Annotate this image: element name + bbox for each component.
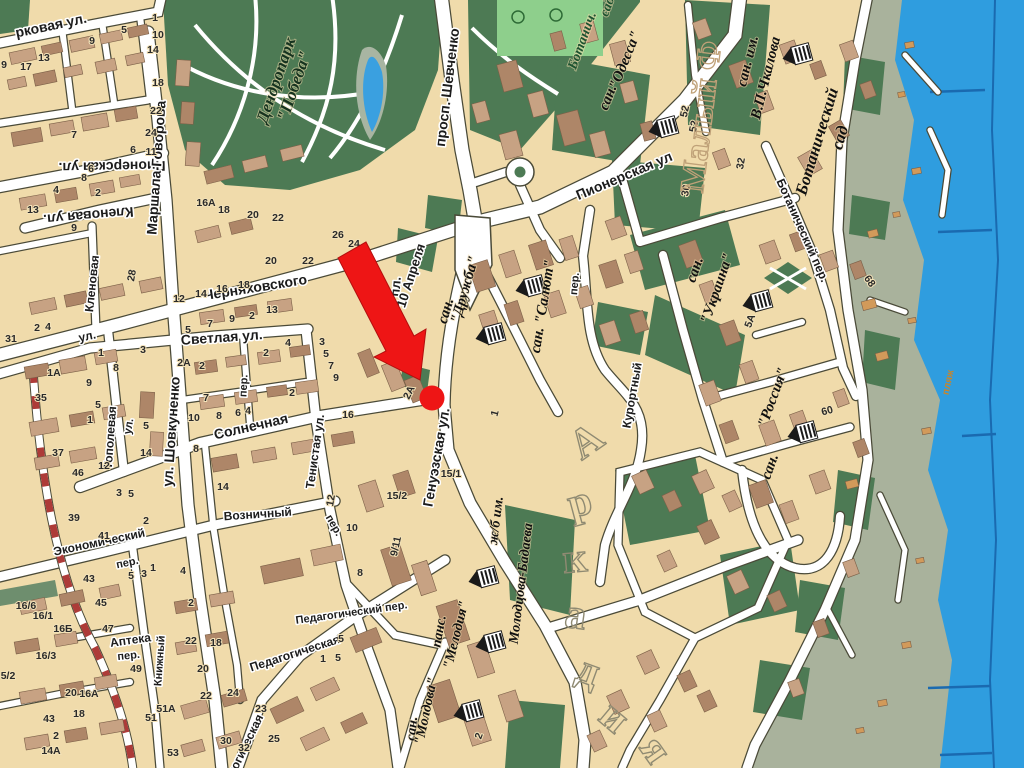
house-number: 3 xyxy=(141,568,147,580)
building xyxy=(908,317,917,323)
house-number: 1А xyxy=(47,367,61,379)
house-number: 22 xyxy=(200,690,212,702)
building xyxy=(916,557,925,563)
street-label: пер. xyxy=(237,374,250,397)
house-number: 5 xyxy=(143,420,149,432)
house-number: 15/2 xyxy=(387,490,408,502)
house-number: 3 xyxy=(140,344,146,356)
house-number: 16/1 xyxy=(33,610,54,622)
house-number: 39 xyxy=(68,512,80,524)
house-number: 49 xyxy=(130,663,142,675)
house-number: 16 xyxy=(342,409,354,421)
house-number: 4 xyxy=(53,184,59,196)
house-number: 5 xyxy=(338,633,344,645)
house-number: 12 xyxy=(98,460,110,472)
house-number: 14 xyxy=(140,447,152,459)
house-number: 10 xyxy=(188,412,200,424)
house-number: 28 xyxy=(125,269,139,283)
district-label-arcadia-letter: к xyxy=(561,535,590,583)
house-number: 9 xyxy=(89,35,95,47)
house-number: 13 xyxy=(27,204,39,216)
building xyxy=(922,427,932,434)
house-number: 5 xyxy=(185,324,191,336)
house-number: 24 xyxy=(227,687,239,699)
house-number: 2 xyxy=(199,360,205,372)
house-number: 14 xyxy=(217,481,229,493)
house-number: 22 xyxy=(302,255,314,267)
house-number: 10 xyxy=(152,29,164,41)
house-number: 8 xyxy=(113,362,119,374)
house-number: 1 xyxy=(150,562,156,574)
house-number: 32 xyxy=(238,742,250,754)
house-number: 1 xyxy=(320,653,326,665)
map-canvas[interactable]: рковая ул.Пионерская ул.Маршала Говорова… xyxy=(0,0,1024,768)
building xyxy=(912,167,922,174)
house-number: 1 xyxy=(152,12,158,24)
house-number: 7 xyxy=(71,129,77,141)
house-number: 8 xyxy=(193,443,199,455)
house-number: 2 xyxy=(143,515,149,527)
building xyxy=(185,142,201,167)
house-number: 16А xyxy=(79,688,99,700)
house-number: 5 xyxy=(323,348,329,360)
house-number: 4 xyxy=(180,565,186,577)
house-number: 12 xyxy=(173,293,185,305)
house-number: 22 xyxy=(150,105,162,117)
house-number: 8 xyxy=(81,172,87,184)
street-label: пер. xyxy=(568,272,582,296)
house-number: 6 xyxy=(235,407,241,419)
house-number: 22 xyxy=(272,212,284,224)
building xyxy=(175,60,191,87)
house-number: 26 xyxy=(332,229,344,241)
house-number: 17 xyxy=(20,61,32,73)
house-number: 43 xyxy=(83,573,95,585)
house-number: 3 xyxy=(319,336,325,348)
house-number: 16/3 xyxy=(36,650,57,662)
house-number: 2 xyxy=(289,387,295,399)
house-number: 5 xyxy=(128,488,134,500)
house-number: 4 xyxy=(45,321,51,333)
building xyxy=(856,727,865,733)
house-number: 18 xyxy=(238,279,250,291)
house-number: 4 xyxy=(285,337,291,349)
house-number: 22 xyxy=(185,635,197,647)
house-number: 10 xyxy=(346,522,358,534)
house-number: 24 xyxy=(145,127,157,139)
house-number: 1 xyxy=(87,414,93,426)
house-number: 2 xyxy=(53,730,59,742)
house-number: 8 xyxy=(216,410,222,422)
city-map[interactable]: рковая ул.Пионерская ул.Маршала Говорова… xyxy=(0,0,1024,768)
house-number: 43 xyxy=(43,713,55,725)
house-number: 2 xyxy=(263,347,269,359)
house-number: 13 xyxy=(38,52,50,64)
house-number: 18 xyxy=(218,204,230,216)
house-number: 5 xyxy=(95,399,101,411)
house-number: 5 xyxy=(121,24,127,36)
house-number: 20 xyxy=(65,687,77,699)
house-number: 53 xyxy=(167,747,179,759)
building xyxy=(905,41,915,48)
house-number: 47 xyxy=(102,623,114,635)
house-number: 4 xyxy=(245,405,251,417)
building xyxy=(893,211,901,217)
house-number: 25 xyxy=(268,733,280,745)
house-number: 14А xyxy=(41,745,61,757)
house-number: 13 xyxy=(266,304,278,316)
house-number: 6 xyxy=(130,144,136,156)
house-number: 20 xyxy=(247,209,259,221)
building xyxy=(878,699,888,706)
house-number: 9 xyxy=(333,372,339,384)
house-number: 18 xyxy=(152,77,164,89)
house-number: 37 xyxy=(52,447,64,459)
building xyxy=(180,102,195,125)
house-number: 8 xyxy=(357,567,363,579)
house-number: 14 xyxy=(147,44,159,56)
house-number: 1 xyxy=(98,347,104,359)
house-number: 15/1 xyxy=(441,468,462,480)
house-number: 7 xyxy=(328,360,334,372)
house-number: 16А xyxy=(196,197,216,209)
house-number: 2 xyxy=(95,187,101,199)
house-number: 5 xyxy=(128,570,134,582)
house-number: 31 xyxy=(5,333,17,345)
house-number: 5 xyxy=(335,652,341,664)
house-number: 16Б xyxy=(53,623,73,635)
house-number: 11 xyxy=(145,146,156,158)
house-number: 20 xyxy=(197,663,209,675)
house-number: 18 xyxy=(73,708,85,720)
house-number: 46 xyxy=(72,467,84,479)
house-number: 23 xyxy=(255,703,267,715)
house-number: 7 xyxy=(207,318,213,330)
house-number: 35 xyxy=(35,392,47,404)
building xyxy=(898,91,906,97)
house-number: 51 xyxy=(145,712,157,724)
house-number: 9 xyxy=(229,313,235,325)
house-number: 5/2 xyxy=(1,670,16,682)
house-number: 3 xyxy=(116,487,122,499)
house-number: 9 xyxy=(1,59,7,71)
house-number: 51А xyxy=(156,703,176,715)
house-number: 12 xyxy=(324,494,338,508)
house-number: 2 xyxy=(188,597,194,609)
house-number: 18 xyxy=(210,637,222,649)
house-number: 41 xyxy=(98,530,110,542)
house-number: 30 xyxy=(220,735,232,747)
red-dot-marker xyxy=(420,386,445,411)
house-number: 32 xyxy=(734,157,748,171)
house-number: 7 xyxy=(203,392,209,404)
house-number: 9 xyxy=(71,222,77,234)
house-number: 2 xyxy=(34,322,40,334)
building xyxy=(902,641,912,648)
house-number: 6 xyxy=(88,163,94,175)
house-number: 2 xyxy=(249,310,255,322)
house-number: 20 xyxy=(265,255,277,267)
building xyxy=(139,392,154,419)
house-number: 9 xyxy=(86,377,92,389)
house-number: 2А xyxy=(177,357,191,369)
house-number: 16 xyxy=(216,283,228,295)
street-label: пер. xyxy=(117,649,141,663)
house-number: 45 xyxy=(95,597,107,609)
house-number: 14 xyxy=(195,288,207,300)
